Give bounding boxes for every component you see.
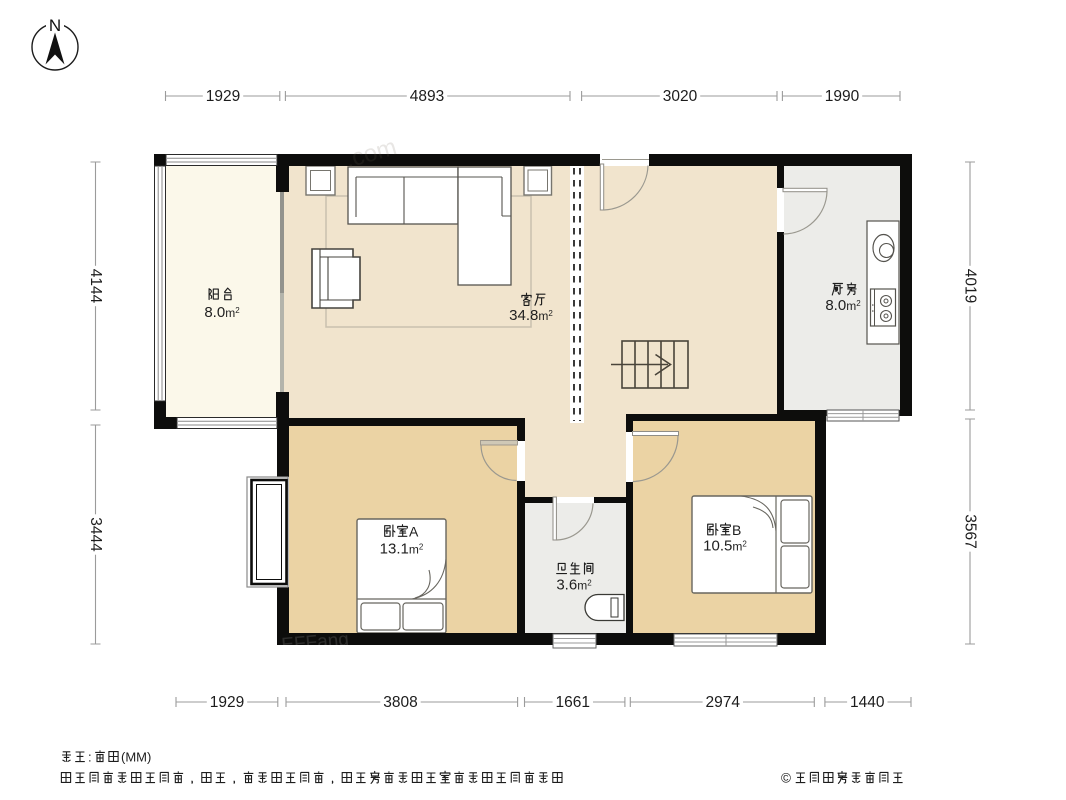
svg-text:3020: 3020: [663, 88, 698, 105]
svg-text:©: ©: [781, 771, 791, 786]
svg-text:3444: 3444: [87, 517, 104, 552]
svg-text:1440: 1440: [850, 694, 885, 711]
svg-text::: :: [88, 750, 92, 765]
svg-text:13.1m2: 13.1m2: [380, 541, 424, 558]
svg-text:2974: 2974: [706, 694, 741, 711]
svg-text:3808: 3808: [383, 694, 417, 711]
svg-text:1990: 1990: [825, 88, 860, 105]
svg-text:3.6m2: 3.6m2: [556, 577, 592, 594]
svg-text:34.8m2: 34.8m2: [509, 307, 553, 324]
svg-text:B: B: [732, 522, 741, 538]
svg-text:8.0m2: 8.0m2: [825, 297, 861, 314]
svg-text:10.5m2: 10.5m2: [703, 538, 747, 555]
svg-text:(MM): (MM): [121, 750, 151, 765]
svg-text:N: N: [49, 16, 61, 35]
svg-text:4144: 4144: [87, 269, 104, 304]
svg-text:A: A: [409, 524, 419, 540]
svg-text:1661: 1661: [556, 694, 590, 711]
svg-text:4019: 4019: [962, 269, 979, 303]
svg-text:1929: 1929: [206, 88, 240, 105]
svg-text:EFFang: EFFang: [281, 629, 350, 656]
svg-text:3567: 3567: [962, 514, 979, 548]
svg-text:1929: 1929: [210, 694, 244, 711]
svg-text:8.0m2: 8.0m2: [204, 304, 240, 321]
svg-text:4893: 4893: [410, 88, 444, 105]
